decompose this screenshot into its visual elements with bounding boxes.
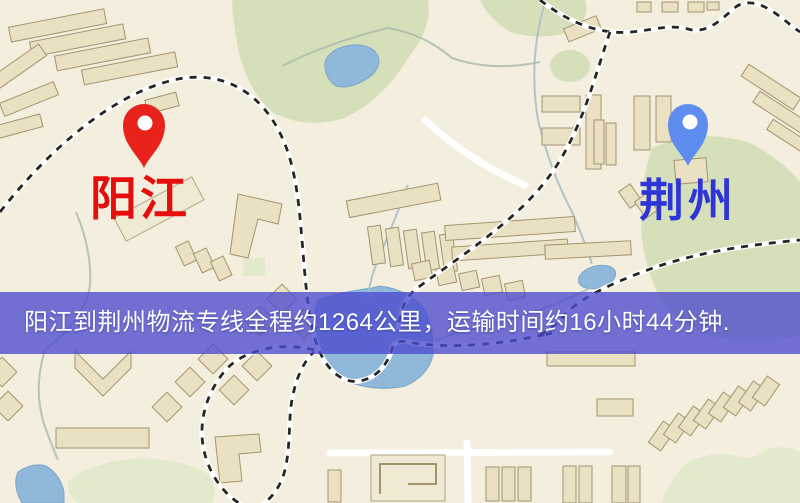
- route-info-banner: 阳江到荆州物流专线全程约1264公里，运输时间约16小时44分钟.: [0, 292, 800, 354]
- destination-pin-icon: [665, 102, 711, 166]
- destination-label: 荆州: [639, 179, 737, 224]
- route-info-text: 阳江到荆州物流专线全程约1264公里，运输时间约16小时44分钟.: [24, 309, 730, 336]
- map-artwork: [0, 0, 800, 503]
- map-canvas[interactable]: 阳江 荆州 阳江到荆州物流专线全程约1264公里，运输时间约16小时44分钟.: [0, 0, 800, 503]
- origin-pin-icon: [120, 102, 168, 168]
- origin-pin[interactable]: [120, 102, 168, 168]
- origin-label: 阳江: [90, 177, 190, 224]
- destination-pin[interactable]: [665, 102, 713, 168]
